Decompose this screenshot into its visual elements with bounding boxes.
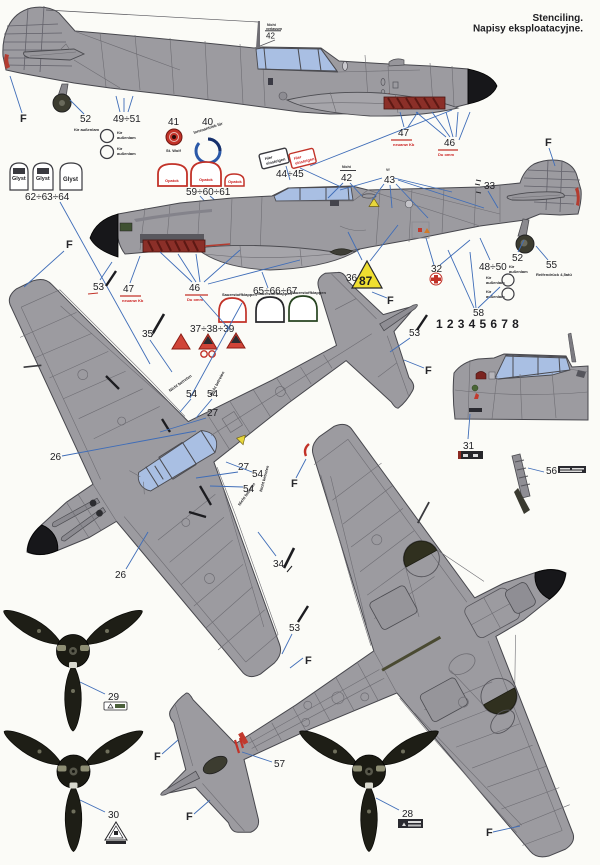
svg-text:F: F [154, 751, 161, 763]
svg-text:außenlam: außenlam [117, 151, 136, 156]
svg-text:Nicht: Nicht [342, 165, 352, 169]
svg-text:St. Wolf: St. Wolf [166, 148, 181, 153]
svg-text:F: F [66, 239, 73, 251]
svg-text:Opatok: Opatok [228, 179, 243, 184]
svg-text:28: 28 [402, 809, 414, 820]
svg-text:Glyst: Glyst [63, 177, 78, 183]
svg-text:26: 26 [50, 452, 62, 463]
svg-text:42: 42 [341, 173, 353, 184]
svg-text:Sauerstoffklappen: Sauerstoffklappen [291, 290, 326, 295]
svg-text:neuanw Kb: neuanw Kb [393, 142, 415, 147]
svg-text:47: 47 [123, 284, 135, 295]
svg-text:Sauerstoffklappen: Sauerstoffklappen [222, 292, 257, 297]
svg-text:43: 43 [384, 175, 396, 186]
svg-text:Du omm: Du omm [438, 152, 454, 157]
svg-text:53: 53 [409, 328, 421, 339]
svg-text:47: 47 [398, 128, 410, 139]
svg-text:41: 41 [168, 117, 180, 128]
svg-text:44÷45: 44÷45 [276, 169, 304, 180]
svg-text:Reifendrück 4,5atü: Reifendrück 4,5atü [536, 272, 572, 277]
svg-text:53: 53 [289, 623, 301, 634]
svg-text:54: 54 [186, 389, 198, 400]
svg-text:F: F [486, 827, 493, 839]
svg-text:87: 87 [359, 274, 373, 288]
svg-text:Napisy eksploatacyjne.: Napisy eksploatacyjne. [473, 24, 583, 35]
svg-text:Stenciling.: Stenciling. [532, 13, 583, 24]
svg-text:für außenlam: für außenlam [74, 127, 100, 132]
svg-text:59÷60÷61: 59÷60÷61 [186, 187, 231, 198]
svg-text:27: 27 [207, 408, 219, 419]
svg-text:F: F [545, 137, 552, 149]
svg-text:F: F [186, 811, 193, 823]
svg-text:F: F [291, 478, 298, 490]
svg-text:30: 30 [108, 810, 120, 821]
svg-text:Glyst: Glyst [12, 176, 26, 182]
svg-text:F: F [305, 655, 312, 667]
svg-text:außenlam: außenlam [509, 269, 528, 274]
svg-text:55: 55 [546, 260, 558, 271]
svg-text:Opatok: Opatok [199, 177, 214, 182]
svg-text:56: 56 [546, 466, 558, 477]
svg-text:Sauerstoffklappen: Sauerstoffklappen [257, 291, 292, 296]
svg-text:57: 57 [274, 759, 286, 770]
svg-text:52: 52 [80, 114, 92, 125]
svg-text:außenlam: außenlam [117, 135, 136, 140]
svg-text:42: 42 [266, 32, 275, 41]
svg-text:29: 29 [108, 692, 120, 703]
svg-text:46: 46 [444, 138, 456, 149]
svg-text:31: 31 [463, 441, 475, 452]
svg-text:34: 34 [273, 559, 285, 570]
svg-text:53: 53 [93, 282, 105, 293]
svg-text:49÷51: 49÷51 [113, 114, 141, 125]
svg-text:F: F [425, 365, 432, 377]
svg-text:37÷38÷39: 37÷38÷39 [190, 324, 235, 335]
svg-text:Opatok: Opatok [165, 178, 180, 183]
svg-text:62÷63÷64: 62÷63÷64 [25, 192, 70, 203]
svg-text:52: 52 [512, 253, 524, 264]
svg-text:F: F [387, 295, 394, 307]
svg-text:neuanw Kb: neuanw Kb [122, 298, 144, 303]
svg-text:12345678: 12345678 [436, 317, 523, 331]
svg-text:33: 33 [484, 181, 496, 192]
svg-text:48÷50: 48÷50 [479, 262, 507, 273]
svg-text:35: 35 [142, 329, 154, 340]
svg-text:46: 46 [189, 283, 201, 294]
svg-text:F: F [20, 113, 27, 125]
svg-text:Glyst: Glyst [36, 176, 50, 182]
svg-text:26: 26 [115, 570, 127, 581]
